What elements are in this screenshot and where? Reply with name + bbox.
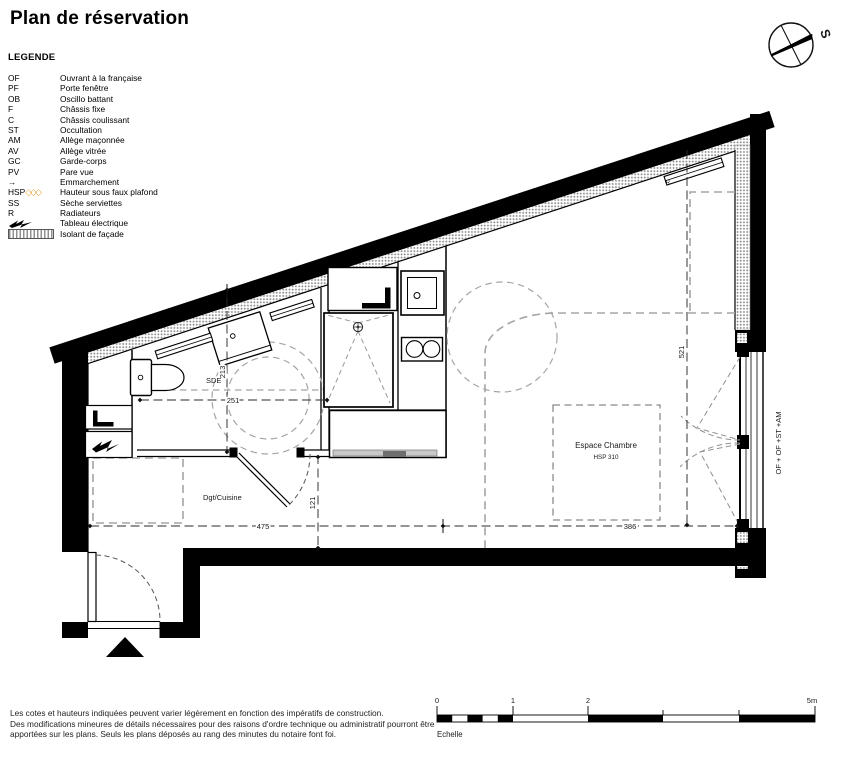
compass-needle-icon: [771, 34, 813, 57]
room-label-chambre-hsp: HSP 310: [593, 454, 619, 461]
kitchen-sink: [401, 271, 444, 315]
disclaimer-line: Les cotes et hauteurs indiquées peuvent …: [10, 708, 435, 719]
scale-tick-0: 0: [435, 696, 439, 705]
scale-tick-1: 1: [511, 696, 515, 705]
room-label-dgt-cuisine: Dgt/Cuisine: [203, 493, 242, 502]
bathroom-door: [236, 453, 310, 507]
dim-passage: 121: [308, 497, 317, 510]
dim-right-width: 386: [624, 522, 637, 531]
scale-tick-5m: 5m: [807, 696, 817, 705]
scale-tick-2: 2: [586, 696, 590, 705]
window-of-of-st-am: [680, 348, 766, 528]
shower: [324, 313, 393, 407]
window-swing-arcs: [680, 357, 740, 521]
scale-bar: 0 1 2 5m Echelle: [435, 696, 817, 739]
floor-plan: R OF + OF +ST +AM: [0, 0, 849, 759]
scale-caption: Echelle: [437, 730, 463, 739]
wall-corner-box: [86, 406, 133, 430]
turning-circle-bathroom-inner: [227, 357, 309, 439]
window-label: OF + OF +ST +AM: [774, 411, 783, 474]
toilet: [131, 360, 185, 396]
compass-south-label: S: [817, 27, 834, 40]
espace-chambre-zone: Espace Chambre HSP 310: [553, 405, 660, 520]
entrance-arrow-icon: [106, 637, 144, 657]
cooktop: [402, 338, 443, 362]
step-box: [328, 268, 397, 311]
dim-left-width: 475: [257, 522, 270, 531]
kitchen-counter: [330, 411, 447, 458]
facade-insulation-strip: [80, 137, 762, 361]
room-label-sde: SDE: [206, 376, 221, 385]
room-label-chambre: Espace Chambre: [575, 441, 637, 450]
turning-circle-room: [447, 282, 557, 392]
radiator: [270, 299, 314, 320]
compass: S: [769, 23, 834, 67]
dim-room-height: 521: [677, 346, 686, 359]
disclaimer-line: Des modifications mineures de détails né…: [10, 719, 435, 730]
electrical-panel: [86, 432, 133, 458]
entrance-door: [88, 553, 160, 623]
disclaimer-line: apportées sur les plans. Seuls les plans…: [10, 729, 435, 740]
disclaimer: Les cotes et hauteurs indiquées peuvent …: [10, 708, 435, 740]
plan-page: Plan de réservation LEGENDE OFOuvrant à …: [0, 0, 849, 759]
dim-bath-width: 251: [227, 396, 240, 405]
radiator-label: R: [666, 180, 670, 186]
